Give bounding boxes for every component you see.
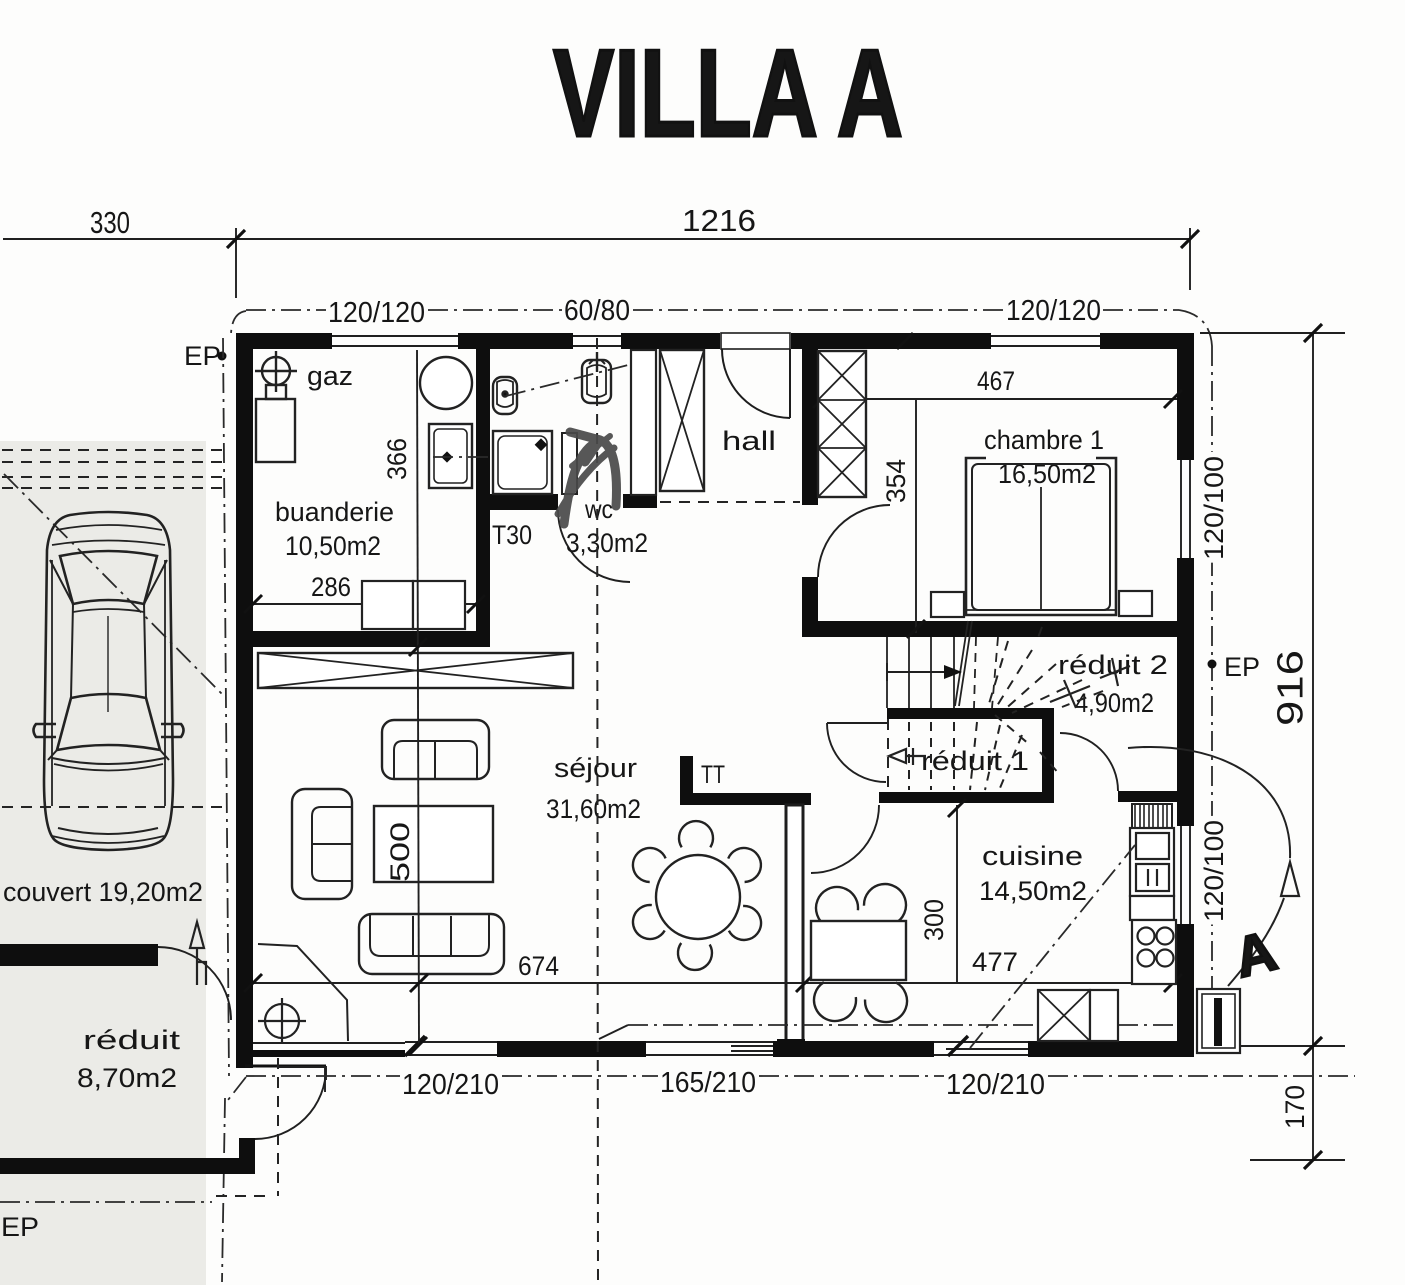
svg-text:120/100: 120/100 (1199, 456, 1229, 560)
svg-text:120/120: 120/120 (328, 297, 425, 329)
svg-text:8,70m2: 8,70m2 (77, 1063, 177, 1093)
svg-text:120/210: 120/210 (946, 1069, 1045, 1101)
svg-text:916: 916 (1270, 650, 1311, 726)
svg-text:10,50m2: 10,50m2 (285, 531, 381, 561)
svg-text:EP: EP (1, 1212, 39, 1242)
svg-text:1216: 1216 (682, 203, 756, 238)
svg-text:330: 330 (90, 205, 130, 240)
svg-text:31,60m2: 31,60m2 (546, 794, 641, 824)
svg-text:gaz: gaz (307, 361, 353, 391)
svg-text:500: 500 (385, 822, 415, 882)
svg-text:354: 354 (881, 459, 911, 503)
svg-text:4,90m2: 4,90m2 (1075, 688, 1154, 718)
svg-text:477: 477 (972, 947, 1018, 977)
svg-text:366: 366 (382, 438, 412, 480)
svg-text:EP: EP (184, 341, 221, 371)
svg-text:cuisine: cuisine (982, 841, 1083, 871)
svg-text:286: 286 (311, 572, 351, 602)
svg-text:467: 467 (977, 366, 1015, 396)
svg-text:14,50m2: 14,50m2 (979, 876, 1087, 906)
svg-text:réduit 1: réduit 1 (921, 746, 1029, 776)
svg-text:chambre 1: chambre 1 (984, 425, 1104, 455)
svg-text:60/80: 60/80 (564, 295, 630, 327)
svg-text:120/100: 120/100 (1199, 820, 1229, 922)
svg-text:VILLA A: VILLA A (553, 25, 903, 163)
svg-text:séjour: séjour (554, 753, 637, 783)
svg-text:couvert 19,20m2: couvert 19,20m2 (3, 877, 203, 907)
svg-text:wc: wc (584, 494, 613, 524)
svg-text:674: 674 (518, 951, 559, 981)
svg-text:3,30m2: 3,30m2 (566, 528, 648, 558)
svg-text:TT: TT (701, 761, 725, 789)
svg-text:170: 170 (1280, 1085, 1310, 1129)
svg-text:buanderie: buanderie (275, 497, 394, 527)
svg-text:T30: T30 (492, 520, 532, 550)
svg-text:165/210: 165/210 (660, 1067, 756, 1099)
svg-text:EP: EP (1224, 652, 1260, 682)
svg-text:120/210: 120/210 (402, 1069, 499, 1101)
svg-text:réduit: réduit (83, 1025, 181, 1055)
svg-text:hall: hall (722, 426, 776, 456)
svg-text:300: 300 (919, 899, 949, 941)
svg-text:120/120: 120/120 (1006, 295, 1101, 327)
